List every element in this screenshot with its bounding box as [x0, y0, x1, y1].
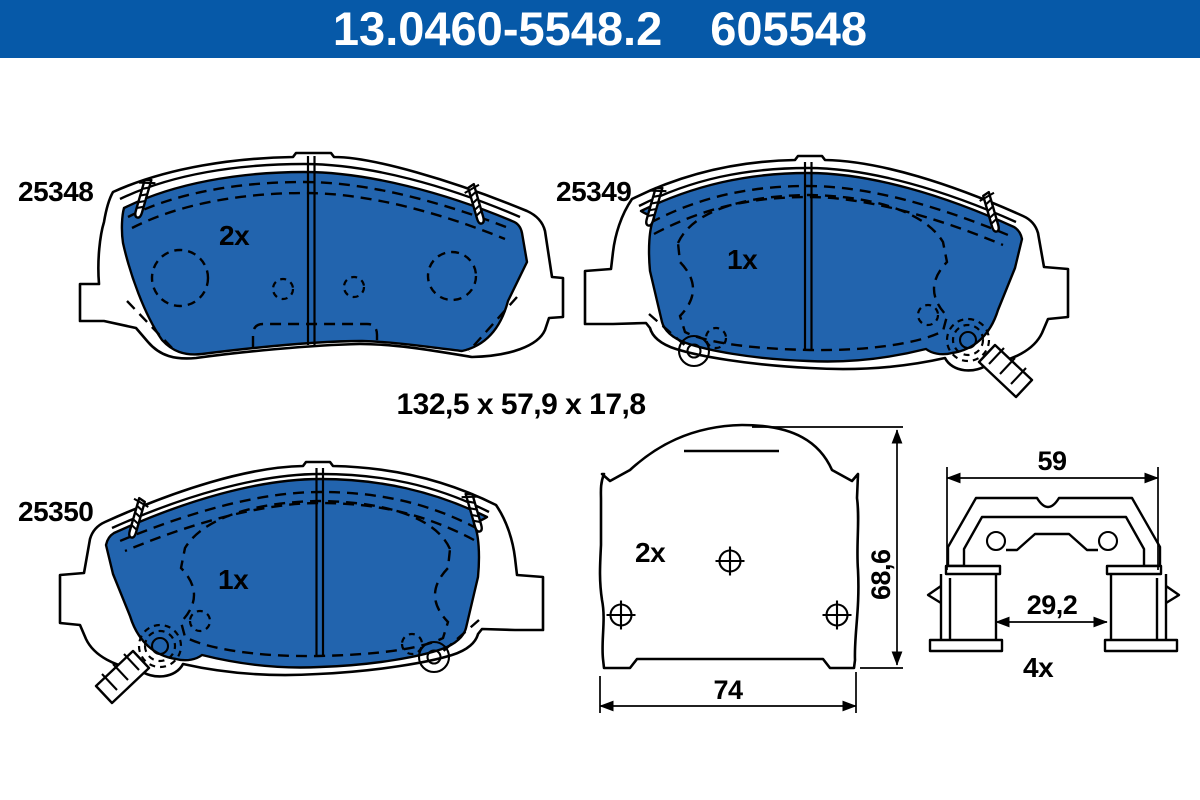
accessory-clip-drawing [928, 498, 1179, 651]
pad-25348-quantity: 2x [219, 220, 250, 251]
pad-25349-quantity: 1x [727, 244, 758, 275]
pad-25348-label: 25348 [18, 176, 93, 207]
pad-25350-label: 25350 [18, 496, 93, 527]
overall-dimensions-text: 132,5 x 57,9 x 17,8 [396, 388, 645, 421]
technical-drawing: 25348 2x 25349 1x 25350 1x 132,5 x 57,9 … [0, 0, 1200, 800]
pad-25349-label: 25349 [556, 176, 631, 207]
pad-25350-quantity: 1x [218, 564, 249, 595]
clip-width-dim: 59 [1037, 446, 1067, 476]
backplate-height-dim: 68,6 [866, 549, 896, 600]
clip-spring-profile [948, 498, 1160, 566]
pad-25348-drawing [80, 153, 563, 358]
clip-quantity: 4x [1023, 652, 1054, 683]
clip-inner-dim: 29,2 [1027, 590, 1078, 620]
pad-25350-drawing [60, 462, 543, 703]
backplate-width-dim: 74 [713, 675, 743, 705]
pad-25349-drawing [585, 156, 1068, 397]
clip-leg [1105, 566, 1179, 651]
clip-leg [928, 566, 1002, 651]
backplate-quantity: 2x [635, 537, 666, 568]
